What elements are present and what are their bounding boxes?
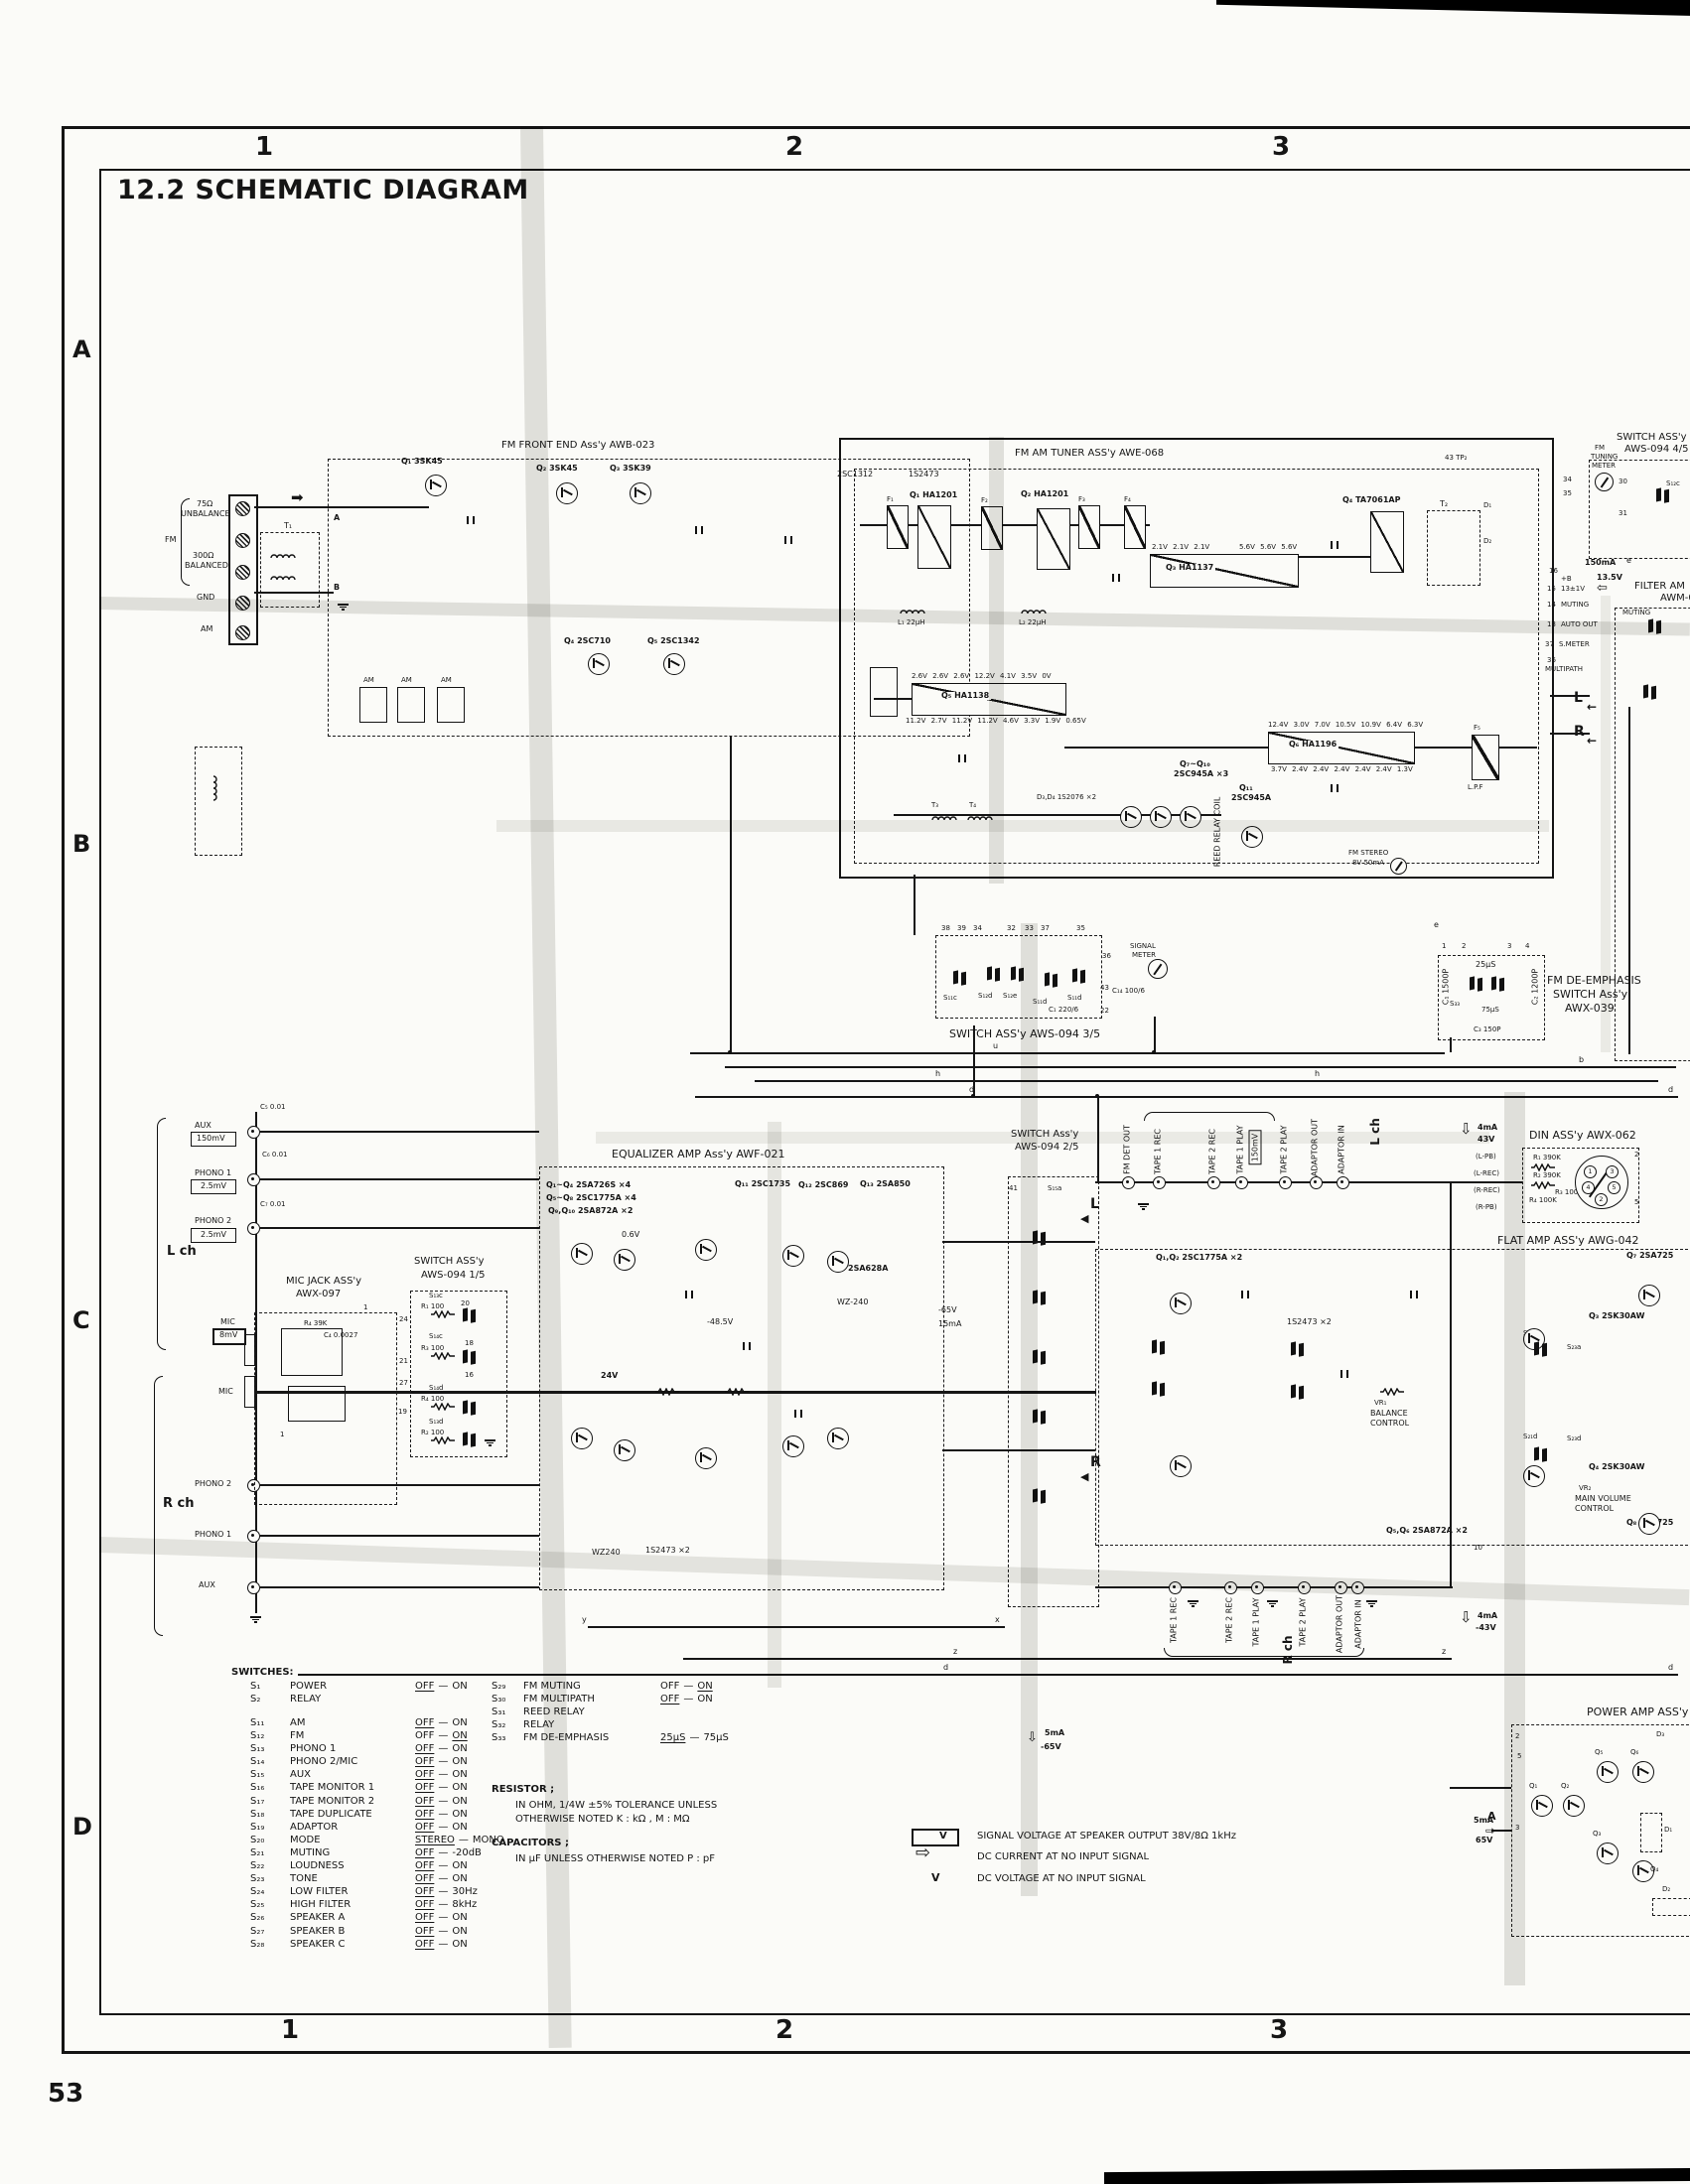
am-cap-label: AM [441, 677, 452, 684]
pw-q2-transistor [1563, 1795, 1585, 1817]
bus-h-label-2: h [1315, 1070, 1320, 1078]
switch-glyph [1033, 1489, 1038, 1503]
pin-37: 37 [1041, 925, 1050, 932]
phono1-l-jack [247, 1173, 260, 1186]
line-e-label: e [1626, 557, 1631, 565]
terminal-screw-am [235, 625, 250, 640]
bus-line-z [683, 1658, 1452, 1660]
switch-glyph [1491, 977, 1496, 991]
fe-q2-label: Q₂ 3SK45 [536, 465, 578, 473]
adaptor-out-r-label: ADAPTOR OUT [1336, 1595, 1344, 1653]
auto-out-label: AUTO OUT [1561, 621, 1598, 628]
junction-dot [1152, 1050, 1156, 1054]
eq-2sa628a-label: 2SA628A [848, 1265, 888, 1273]
tun-q6-label: Q₆ HA1196 [1287, 741, 1338, 749]
equalizer-amp-label: EQUALIZER AMP Ass'y AWF-021 [612, 1149, 784, 1160]
adaptor-in-l-jack [1337, 1176, 1349, 1189]
bus-z-label-2: z [1442, 1648, 1446, 1656]
wire [973, 1025, 975, 1096]
fl-main-volume-1: MAIN VOLUME [1575, 1495, 1631, 1503]
fl-main-volume-2: CONTROL [1575, 1505, 1614, 1513]
eq-transistor [614, 1439, 635, 1461]
capacitor [467, 516, 475, 524]
s12c-label: S₁₂c [1666, 480, 1680, 487]
pin-36: 36 [1102, 953, 1111, 960]
pin-4: 4 [1525, 943, 1529, 950]
scan-black-corner [1216, 0, 1690, 16]
de-emphasis-label-2: SWITCH Ass'y [1553, 989, 1627, 1001]
bus-u-label: u [993, 1042, 998, 1050]
eq-wz240-label-2: WZ240 [592, 1549, 621, 1557]
ha1138-voltages-bottom: 11.2V 2.7V 11.2V 11.2V 4.6V 3.3V 1.9V 0.… [906, 718, 1086, 725]
junction-dot [971, 1094, 975, 1098]
wire [1064, 747, 1268, 749]
fm-front-end-label: FM FRONT END Ass'y AWB-023 [501, 441, 654, 452]
switch-glyph [1152, 1382, 1157, 1396]
din-pin-3: 3 [1606, 1165, 1619, 1178]
dc-voltage-v: V [931, 1872, 940, 1884]
switch-glyph [1152, 1340, 1157, 1354]
eq-q12-label: Q₁₂ 2SC869 [798, 1181, 849, 1189]
pin-24: 24 [399, 1316, 408, 1323]
pw-d1-label: D₁ [1664, 1827, 1672, 1834]
capacitor [958, 754, 966, 762]
eq-v485: -48.5V [707, 1318, 733, 1326]
bus-line-d2 [298, 1674, 1678, 1676]
tuner-out-l-arrow-icon: ← [1587, 701, 1597, 713]
eq-transistor [782, 1435, 804, 1457]
switch-row: S₁₆TAPE MONITOR 1OFF—ON [250, 1781, 504, 1794]
wire [1097, 1096, 1099, 1181]
aux-l-label: AUX [195, 1122, 211, 1130]
tape2-rec-l-jack [1207, 1176, 1220, 1189]
phono1-level-label: 2.5mV [201, 1182, 226, 1190]
tun-q11-transistor [1241, 826, 1263, 848]
s15-r4-label: R₄ 100 [421, 1396, 444, 1403]
eq-v65: -65V [938, 1306, 957, 1314]
capacitor [685, 1291, 693, 1298]
current-150ma-label: 150mA [1585, 559, 1616, 567]
tape1-play-r-label: TAPE 1 PLAY [1252, 1598, 1261, 1647]
capacitor [1112, 574, 1120, 582]
switch-assy-2-5-label-1: SWITCH Ass'y [1011, 1130, 1078, 1141]
grid-row-a: A [72, 338, 91, 362]
switch-row: S₁₁AMOFF—ON [250, 1716, 504, 1729]
balun-t1-label: T₁ [284, 522, 292, 530]
eq-1s2473-label: 1S2473 ×2 [645, 1547, 690, 1555]
pin-1: 1 [1442, 943, 1446, 950]
am-tuning-cap-box [437, 687, 465, 723]
lpf-filter-f5 [1472, 735, 1499, 780]
pw-q5-label: Q₅ [1595, 1749, 1603, 1756]
eq-transistor [695, 1239, 717, 1261]
multipath-label: MULTIPATH [1545, 666, 1583, 673]
din-pin-1: 1 [1584, 1165, 1597, 1178]
f2-label: F₂ [981, 497, 988, 504]
fe-q4-transistor [588, 653, 610, 675]
switch-assy-1-5-label-2: AWS-094 1/5 [421, 1271, 486, 1282]
switch-glyph [1534, 1342, 1539, 1356]
switch-glyph [1648, 619, 1653, 633]
fl-q2-transistor [1170, 1455, 1192, 1477]
tun-q9-transistor [1180, 806, 1201, 828]
fl-q12-label: Q₁,Q₂ 2SC1775A ×2 [1156, 1254, 1242, 1262]
eq-q11-label: Q₁₁ 2SC1735 [735, 1180, 790, 1188]
wire [260, 1586, 539, 1588]
tun-q2-label: Q₂ HA1201 [1021, 490, 1068, 498]
l2-label: L₂ 22µH [1019, 619, 1047, 626]
ground-symbol [1267, 1600, 1278, 1602]
fm-det-out-jack [1122, 1176, 1135, 1189]
tape1-play-r-jack [1251, 1581, 1264, 1594]
din-r2-label: R₂ 390K [1533, 1172, 1561, 1179]
eq-transistor [571, 1428, 593, 1449]
signal-meter-label-2: METER [1132, 952, 1156, 959]
ground-symbol [1366, 1600, 1377, 1602]
switch-glyph [987, 967, 992, 981]
s14c-label: S₁₄c [429, 1333, 443, 1340]
din-assy-label: DIN ASS'y AWX-062 [1529, 1130, 1636, 1142]
switch-row: S₂₉FM MUTINGOFF—ON [492, 1680, 729, 1693]
phono2-r-label: PHONO 2 [195, 1480, 231, 1488]
switches-heading: SWITCHES: [231, 1668, 294, 1679]
bus-line-d [695, 1096, 1678, 1098]
filter-muting-label: MUTING [1622, 610, 1650, 616]
switch-glyph [1033, 1291, 1038, 1304]
pin-27: 27 [399, 1380, 408, 1387]
fl-vr1-label: VR₁ [1374, 1400, 1386, 1407]
din-outer-5: 5 [1634, 1199, 1638, 1206]
discriminator-t2-box [1427, 510, 1480, 586]
eq-transistor [827, 1251, 849, 1273]
pw-q3-label: Q₃ [1593, 1831, 1601, 1838]
wire [1628, 707, 1630, 1054]
tp2-label: 43 TP₂ [1445, 455, 1467, 462]
tape2-rec-r-jack [1224, 1581, 1237, 1594]
am-cap-label: AM [363, 677, 374, 684]
page-number: 53 [48, 2081, 83, 2108]
switch-row: S₂RELAY [250, 1693, 468, 1706]
switch-row: S₁₉ADAPTOROFF—ON [250, 1821, 504, 1834]
c2-label: C₂ 1200P [1531, 969, 1540, 1006]
pin-34: 34 [1563, 477, 1572, 483]
scan-black-bar [1104, 2168, 1690, 2184]
tape1-rec-r-label: TAPE 1 REC [1170, 1597, 1179, 1643]
tun-q1-label: Q₁ HA1201 [910, 491, 957, 499]
tun-q8-transistor [1150, 806, 1172, 828]
rch-jack-brace [1164, 1648, 1364, 1657]
legend-row-2: DC CURRENT AT NO INPUT SIGNAL [977, 1852, 1149, 1863]
t4-label: T₄ [969, 802, 976, 809]
fl-q4-label: Q₄ 2SK30AW [1589, 1463, 1644, 1471]
wire [1154, 1017, 1156, 1052]
fe-q3-label: Q₃ 3SK39 [610, 465, 651, 473]
stereo-pilot-lamp [1390, 858, 1407, 875]
fl-s23d-label: S₂₃d [1567, 1435, 1582, 1442]
mj-c4-label: C₄ 0.0027 [324, 1332, 357, 1339]
fl-q56-label: Q₅,Q₆ 2SA872A ×2 [1386, 1527, 1468, 1535]
adaptor-out-l-label: ADAPTOR OUT [1311, 1119, 1320, 1176]
stereo-lamp-label-1: FM STEREO [1348, 850, 1388, 857]
grid-row-b: B [72, 832, 90, 857]
ha1137-voltages-right: 5.6V 5.6V 5.6V [1239, 544, 1297, 551]
switch-row: S₃₃FM DE-EMPHASIS25µS—75µS [492, 1731, 729, 1744]
wire [1297, 556, 1372, 558]
adaptor-in-r-jack [1351, 1581, 1364, 1594]
pw-pin-2: 2 [1515, 1733, 1519, 1740]
ground-symbol [1138, 1203, 1149, 1205]
grid-row-d: D [72, 1815, 92, 1840]
fe-q5-label: Q₅ 2SC1342 [647, 637, 700, 645]
wire [1450, 1181, 1452, 1586]
tape1-play-l-label: TAPE 1 PLAY [1236, 1126, 1245, 1174]
adaptor-in-l-label: ADAPTOR IN [1338, 1125, 1346, 1173]
switch-glyph [463, 1308, 468, 1322]
ha1201-ic-1 [917, 505, 951, 569]
pin-22: 22 [1100, 1008, 1109, 1015]
pin-21: 21 [399, 1358, 408, 1365]
terminal-label-300ohm: 300Ω [193, 552, 213, 560]
bus-line-b [725, 1066, 1676, 1068]
balun-transformer-box [260, 532, 320, 608]
plus-b-label: +B [1561, 576, 1572, 583]
rch-label: R ch [163, 1497, 195, 1511]
fm-det-out-label: FM DET OUT [1123, 1125, 1132, 1174]
terminal-label-gnd: GND [197, 594, 214, 602]
switch-row: S₁POWEROFF—ON [250, 1680, 468, 1693]
ha1196-voltages-bottom: 3.7V 2.4V 2.4V 2.4V 2.4V 2.4V 1.3V [1271, 766, 1413, 773]
phono1-l-label: PHONO 1 [195, 1169, 231, 1177]
s33-label: S₃₃ [1450, 1001, 1460, 1008]
c1-label: C₁ 1500P [1442, 969, 1451, 1006]
tape1-play-level: 150mV [1249, 1131, 1262, 1165]
switch-glyph [1011, 967, 1016, 981]
bus-z-label: z [953, 1648, 957, 1656]
s12e-label: S₁₂e [1003, 993, 1017, 1000]
filter-amp-label-2: AWM-0 [1660, 594, 1690, 605]
s12d-label: S₁₂d [978, 993, 993, 1000]
c6-label: C₆ 0.01 [262, 1152, 288, 1159]
mic-level-label: 8mV [219, 1331, 237, 1339]
grid-col-3-top: 3 [1272, 134, 1290, 161]
grid-col-1-top: 1 [255, 134, 273, 161]
mic-l-label: MIC [220, 1318, 235, 1326]
terminal-screw-75ohm [235, 501, 250, 516]
pin-16: 16 [465, 1372, 474, 1379]
lch-brace [157, 1118, 166, 1350]
tun-q4-label: Q₄ TA7061AP [1342, 496, 1400, 504]
c5-label: C₅ 0.01 [260, 1104, 286, 1111]
fl-5ma-label: 5mA [1045, 1729, 1064, 1737]
ceramic-filter-f3 [1078, 505, 1100, 549]
eq-15ma: 15mA [938, 1320, 961, 1328]
de-emphasis-label-1: FM DE-EMPHASIS [1547, 975, 1641, 987]
c3-label: C₃ 150P [1474, 1026, 1501, 1033]
switch-row: S₂₆SPEAKER AOFF—ON [250, 1911, 504, 1924]
s15-r2-label: R₂ 100 [421, 1430, 444, 1436]
tun-q11-label-2: 2SC945A [1231, 794, 1271, 802]
ta7061ap-ic [1370, 511, 1404, 573]
fl-balance-label-1: BALANCE [1370, 1410, 1408, 1418]
eq-transistor [571, 1243, 593, 1265]
mj-pin-1b: 1 [280, 1432, 284, 1438]
wire [942, 1241, 1095, 1243]
fl-m65v-label: -65V [1041, 1743, 1061, 1751]
din-rrec-label: (R-REC) [1474, 1187, 1500, 1194]
switch-glyph [1534, 1447, 1539, 1461]
eq-v24: 24V [601, 1372, 618, 1380]
eq-transistor [695, 1447, 717, 1469]
phono1-r-jack [247, 1530, 260, 1543]
ground-symbol [250, 1616, 261, 1618]
capacitor [1331, 784, 1338, 792]
jt-4ma-label: 4mA [1478, 1124, 1497, 1132]
din-pin-5: 5 [1608, 1181, 1620, 1194]
terminal-label-am: AM [201, 625, 212, 633]
legend-row-3: DC VOLTAGE AT NO INPUT SIGNAL [977, 1874, 1146, 1885]
s15-r1-label: R₁ 100 [421, 1303, 444, 1310]
capacitor [1410, 1291, 1418, 1298]
mic-jack-label-2: AWX-097 [296, 1290, 341, 1300]
switch-row: S₂₂LOUDNESSOFF—ON [250, 1859, 504, 1872]
25us-label: 25µS [1476, 961, 1495, 969]
bus-line-h [755, 1080, 1658, 1082]
eq-transistor [827, 1428, 849, 1449]
signal-meter [1148, 959, 1168, 979]
wire [260, 1535, 539, 1537]
am-bar-antenna-box [195, 747, 242, 856]
tun-1s2473-label: 1S2473 [909, 471, 939, 478]
switch-row: S₂₇SPEAKER BOFF—ON [250, 1925, 504, 1938]
mic-jack-label-1: MIC JACK ASS'y [286, 1277, 361, 1288]
mic-preamp-box-r [288, 1386, 346, 1422]
terminal-label-fm: FM [165, 536, 177, 544]
tape2-rec-l-label: TAPE 2 REC [1208, 1129, 1217, 1174]
fl-pin-10: 10 [1474, 1545, 1482, 1552]
jb-43v-label: -43V [1476, 1624, 1496, 1632]
fl-1s2473-label: 1S2473 ×2 [1287, 1318, 1332, 1326]
din-lrec-label: (L-REC) [1474, 1170, 1499, 1177]
tape1-play-l-jack [1235, 1176, 1248, 1189]
de-emphasis-label-3: AWX-039 [1565, 1003, 1615, 1015]
t2-label: T₂ [1440, 500, 1448, 508]
ha1138-voltages-top: 2.6V 2.6V 2.6V 12.2V 4.1V 3.5V 0V [912, 673, 1052, 680]
pw-q1-transistor [1531, 1795, 1553, 1817]
junction-dot [1095, 1094, 1099, 1098]
lch-label: L ch [167, 1245, 197, 1259]
switch-glyph [1033, 1410, 1038, 1424]
am-tuning-cap-box [397, 687, 425, 723]
switch-row: S₃₀FM MULTIPATHOFF—ON [492, 1693, 729, 1706]
fe-q1-label: Q₁ 3SK45 [401, 458, 443, 466]
tun-q5-label: Q₅ HA1138 [939, 692, 991, 700]
tun-q710-label-2: 2SC945A ×3 [1174, 770, 1228, 778]
4ma-down-arrow-icon: ⇩ [1460, 1122, 1473, 1137]
ha1196-voltages-top: 12.4V 3.0V 7.0V 10.5V 10.9V 6.4V 6.3V [1268, 722, 1423, 729]
pw-65v-label: 65V [1476, 1837, 1492, 1844]
tun-q11-label-1: Q₁₁ [1239, 784, 1253, 792]
pin-35: 35 [1563, 490, 1572, 497]
phono2-level-label: 2.5mV [201, 1231, 226, 1239]
switch-row: S₂₀MODESTEREO—MONO [250, 1834, 504, 1846]
din-r1-label: R₁ 390K [1533, 1155, 1561, 1161]
switch-glyph [1643, 685, 1648, 699]
ceramic-filter-f2 [981, 506, 1003, 550]
grid-col-2-bottom: 2 [775, 2017, 793, 2044]
c1-220-label: C₁ 220/6 [1049, 1007, 1078, 1014]
din-rpb-label: (R-PB) [1476, 1204, 1497, 1211]
aux-r-jack [247, 1581, 260, 1594]
pin-15: 15 [1547, 586, 1556, 593]
tun-d34-label: D₃,D₄ 1S2076 ×2 [1037, 794, 1096, 801]
bus-h-label: h [935, 1070, 940, 1078]
bus-d-label-2: d [1668, 1086, 1673, 1094]
adaptor-out-l-jack [1310, 1176, 1323, 1189]
ha1201-ic-2 [1037, 508, 1070, 570]
dc-current-arrow-icon: ⇦ [1597, 582, 1608, 595]
dc-current-arrow-icon: ⇨ [915, 1844, 930, 1862]
f4-label: F₄ [1124, 496, 1131, 503]
fm-tuning-meter-label-1: FM [1595, 445, 1605, 452]
pw-q3-transistor [1597, 1843, 1619, 1864]
signal-voltage-v: V [939, 1832, 947, 1843]
signal-meter-label-1: SIGNAL [1130, 943, 1156, 950]
tuner-out-r-arrow-icon: ← [1587, 735, 1597, 747]
switch-row: S₁₂FMOFF—ON [250, 1729, 504, 1742]
4ma-down-arrow-icon-r: ⇩ [1460, 1610, 1473, 1625]
eq-wz240-label: WZ-240 [837, 1298, 868, 1306]
s25-l-out-label: L [1090, 1197, 1099, 1212]
pin-35: 35 [1076, 925, 1085, 932]
filter-amp-label-1: FILTER AM [1634, 582, 1685, 593]
pw-q5-transistor [1597, 1761, 1619, 1783]
reed-relay-coil-label: REED RELAY COIL [1213, 797, 1222, 868]
fl-q7-label: Q₇ 2SA725 [1626, 1252, 1673, 1260]
switch-row: S₂₃TONEOFF—ON [250, 1872, 504, 1885]
resistor-note-heading: RESISTOR ; [492, 1783, 554, 1797]
schematic-page: 1 2 3 1 2 3 A B C D 12.2 SCHEMATIC DIAGR… [0, 0, 1690, 2184]
pw-q1-label: Q₁ [1529, 1783, 1537, 1790]
switch-glyph [463, 1401, 468, 1415]
fe-q3-transistor [630, 482, 651, 504]
f1-label: F₁ [887, 496, 894, 503]
s11d2-label: S₁₁d [1067, 995, 1082, 1002]
s14d-label: S₁₄d [429, 1385, 444, 1392]
s-meter-label: S.METER [1559, 641, 1590, 648]
c14-100-label: C₁₄ 100/6 [1112, 988, 1145, 995]
pw-q6-label: Q₆ [1630, 1749, 1638, 1756]
pin-34: 34 [973, 925, 982, 932]
pw-d2-box [1652, 1898, 1690, 1916]
din-lpb-label: (L-PB) [1476, 1154, 1496, 1160]
fe-q5-transistor [663, 653, 685, 675]
capacitor [1340, 1370, 1348, 1378]
eq-q13-label: Q₁₃ 2SA850 [860, 1180, 911, 1188]
switch-legend-group-1: S₁POWEROFF—ON S₂RELAY [250, 1680, 468, 1706]
pin-16: 16 [1549, 568, 1558, 575]
switch-legend-group-3: S₂₉FM MUTINGOFF—ON S₃₀FM MULTIPATHOFF—ON… [492, 1680, 729, 1744]
aux-l-jack [247, 1126, 260, 1139]
capacitor [695, 526, 703, 534]
tape2-play-l-label: TAPE 2 PLAY [1280, 1126, 1289, 1174]
jb-4ma-label: 4mA [1478, 1612, 1497, 1620]
eq-transistor [782, 1245, 804, 1267]
legend-row-1: SIGNAL VOLTAGE AT SPEAKER OUTPUT 38V/8Ω … [977, 1832, 1236, 1843]
am-cap-label: AM [401, 677, 412, 684]
lch-row-label: L ch [1368, 1118, 1382, 1145]
switch-glyph [1072, 969, 1077, 983]
s25-r-arrow-icon: ◀ [1080, 1471, 1088, 1482]
